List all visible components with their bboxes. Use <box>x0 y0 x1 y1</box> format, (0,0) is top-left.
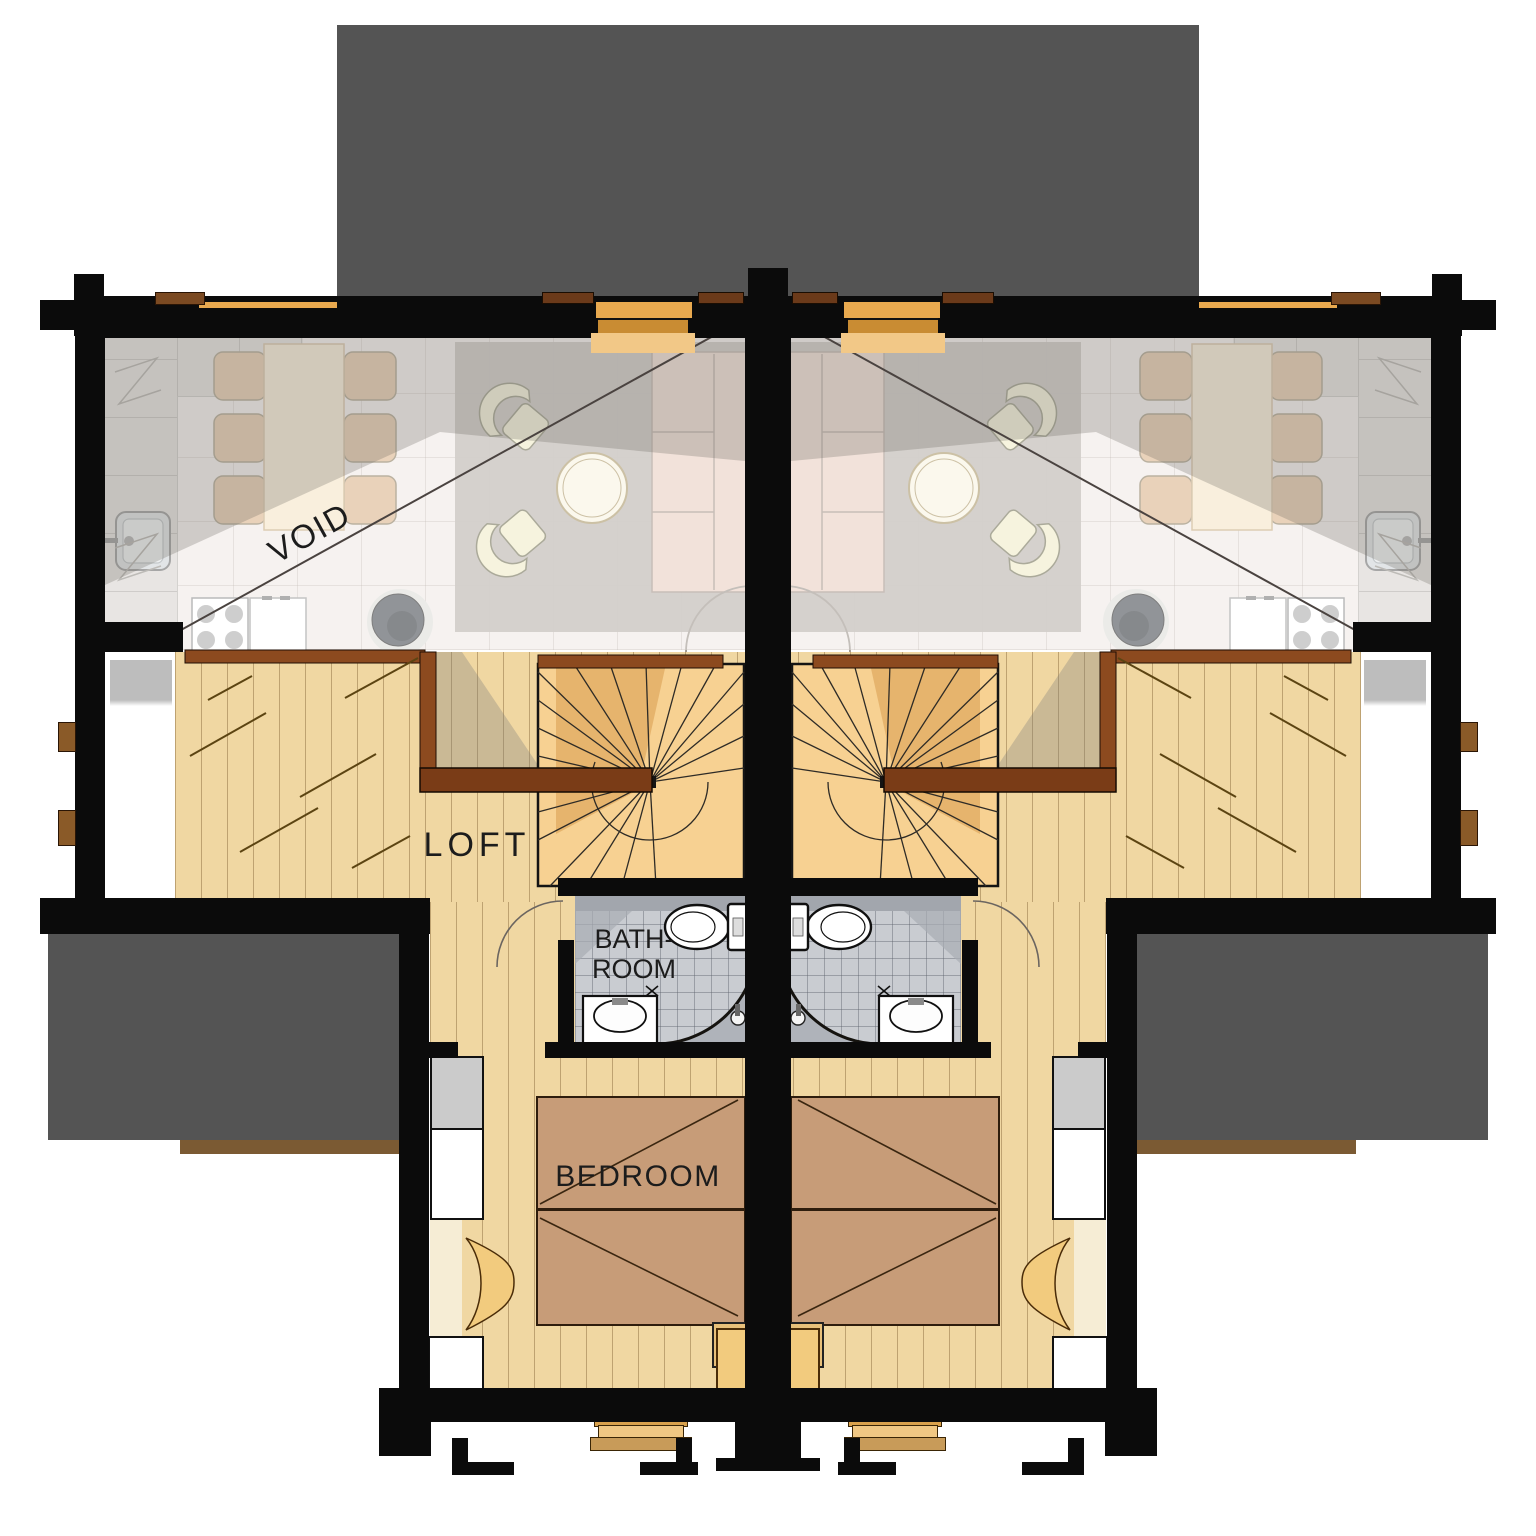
wall-bath-bottom-a <box>428 1042 458 1058</box>
bed-cross-2 <box>540 1218 738 1316</box>
railing-stairs-top <box>813 655 998 668</box>
window-bay-strip-1 <box>844 302 940 318</box>
eave-sill-line <box>199 302 337 308</box>
porch-bracket-2 <box>452 1462 514 1475</box>
bed-cross-1 <box>798 1100 996 1204</box>
eave-bracket-2 <box>792 292 838 304</box>
shutter-2 <box>1460 810 1478 846</box>
unit-right <box>768 0 1536 1536</box>
railing-landing <box>884 768 1116 792</box>
railing-stairs-top <box>538 655 723 668</box>
eave-board <box>1331 292 1381 305</box>
window-bay-strip-3 <box>841 333 945 353</box>
porch-bracket-4 <box>838 1462 896 1475</box>
porch-bracket-4 <box>640 1462 698 1475</box>
floor-dashes <box>1118 658 1346 868</box>
eave-bracket-1 <box>542 292 594 304</box>
wall-kitchen-stub <box>1353 622 1431 652</box>
wall-bath-left <box>962 940 978 1046</box>
porch-bracket-2 <box>1022 1462 1084 1475</box>
railing-room-top <box>185 650 425 663</box>
wall-party <box>768 308 791 1422</box>
wall-bottom-corner <box>379 1420 431 1456</box>
party-bottom-base <box>768 1458 820 1471</box>
shutter-1 <box>58 722 76 752</box>
wall-left <box>75 300 105 932</box>
rail-shadow <box>425 652 540 768</box>
shutter-1 <box>1460 722 1478 752</box>
wall-party <box>745 308 768 1422</box>
bedroom-door-leaf <box>466 1238 514 1330</box>
wall-left <box>1431 300 1461 932</box>
wall-bath-bottom-b <box>545 1042 760 1058</box>
unit-left <box>0 0 768 1536</box>
room-label-bathroom-left: BATH- ROOM <box>534 924 734 984</box>
floor-plan: VOID VOID LOFT LOFT BATH- ROOM BATH- ROO… <box>0 0 1536 1536</box>
roof-shadow <box>105 338 755 585</box>
rail-shadow <box>996 652 1111 768</box>
party-bottom-post <box>768 1422 801 1462</box>
wall-party-cap <box>748 268 768 310</box>
wall-bath-top <box>776 878 978 896</box>
wall-bedroom-left <box>399 934 429 1388</box>
bedroom-door-leaf <box>1022 1238 1070 1330</box>
wall-bottom-corner <box>1105 1420 1157 1456</box>
linework <box>768 0 1536 1536</box>
wall-wing <box>1106 898 1496 934</box>
eave-bracket-1 <box>942 292 994 304</box>
railing-landing <box>420 768 652 792</box>
wall-bottom <box>379 1388 768 1422</box>
wall-corner-log-b <box>40 300 76 330</box>
wall-bottom <box>768 1388 1157 1422</box>
wall-kitchen-stub <box>105 622 183 652</box>
railing-room-top <box>1111 650 1351 663</box>
vanity-sink <box>583 996 657 1044</box>
party-bottom-post <box>735 1422 768 1462</box>
vanity-sink <box>879 996 953 1044</box>
room-label-bedroom-left: BEDROOM <box>538 1160 738 1194</box>
wall-bath-bottom-b <box>776 1042 991 1058</box>
wall-party-cap <box>768 268 788 310</box>
wall-corner-log-b <box>1460 300 1496 330</box>
room-label-loft-left: LOFT <box>377 826 577 864</box>
wall-bedroom-left <box>1107 934 1137 1388</box>
toilet <box>788 904 871 950</box>
wall-bath-bottom-a <box>1078 1042 1108 1058</box>
wall-bath-top <box>558 878 760 896</box>
linework <box>0 0 768 1536</box>
bathroom-door-arc <box>973 901 1039 967</box>
eave-board <box>155 292 205 305</box>
window-bay-strip-3 <box>591 333 695 353</box>
eave-sill-line <box>1199 302 1337 308</box>
eave-bracket-2 <box>698 292 744 304</box>
party-bottom-base <box>716 1458 768 1471</box>
window-bay-strip-1 <box>596 302 692 318</box>
wall-wing <box>40 898 430 934</box>
bed-cross-2 <box>798 1218 996 1316</box>
shutter-2 <box>58 810 76 846</box>
bathroom-fixtures <box>776 896 1039 1044</box>
roof-shadow <box>781 338 1431 585</box>
